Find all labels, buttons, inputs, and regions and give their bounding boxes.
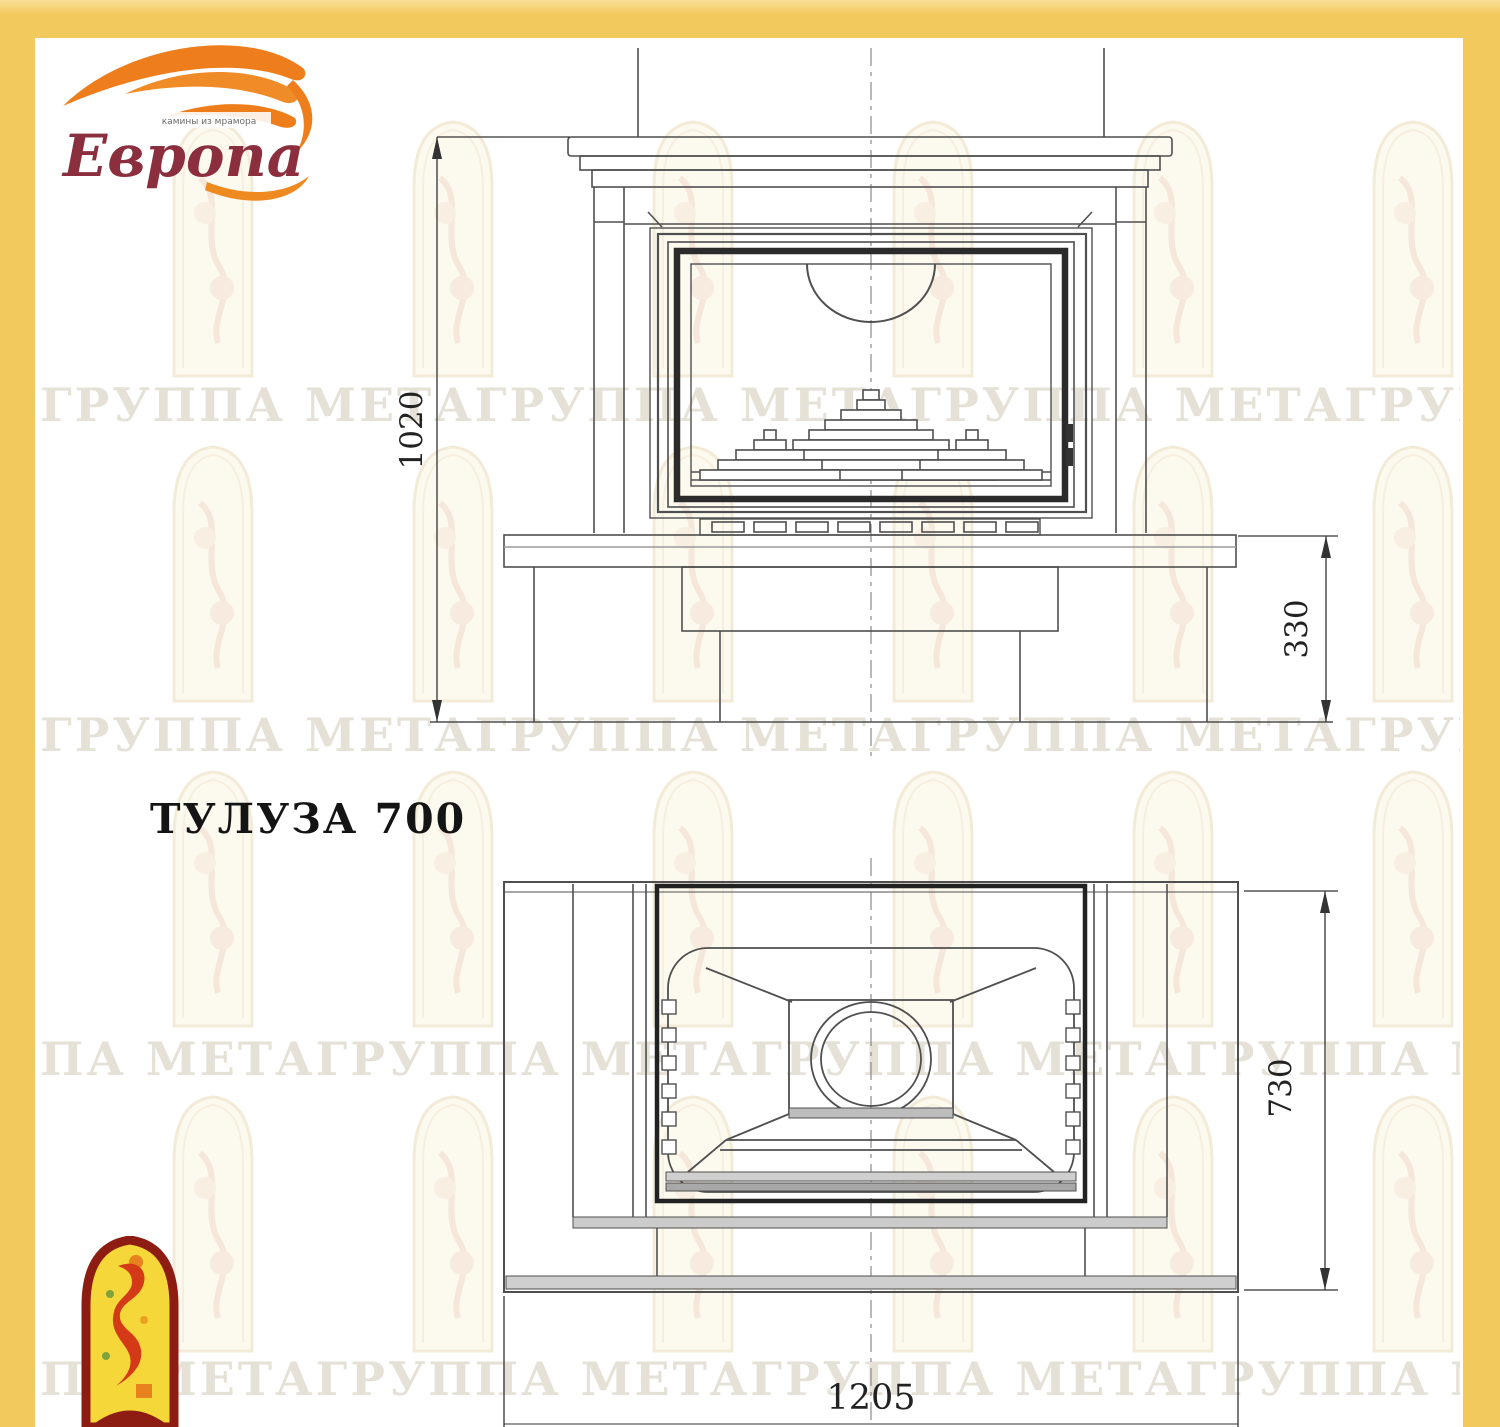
front-view [430,48,1338,760]
fireplace-technical-drawing [0,0,1500,1427]
dim-label-height: 1020 [394,391,430,470]
dim-label-depth: 730 [1263,1058,1299,1117]
europa-logo: камины из мрамора Европа [55,18,325,213]
logo-brand-text: Европа [61,122,304,190]
dim-label-plinth-height: 330 [1279,599,1315,658]
model-title: ТУЛУЗА 700 [150,795,466,843]
plan-side-walls [573,884,1167,1217]
frieze [624,212,1116,227]
plan-floor-strips [666,1172,1076,1191]
dim-1020 [432,137,570,722]
dim-label-width: 1205 [826,1378,915,1418]
base-plinth [430,567,1333,722]
screenshot-root: { "page": { "background_color": "#f2c95c… [0,0,1500,1427]
mantel-shelf [568,137,1172,187]
plan-front-bands [506,1217,1236,1289]
hearth-shelf [504,535,1236,567]
plan-view [504,858,1338,1427]
vent-grille [700,519,1040,535]
meta-group-emblem-icon [80,1236,180,1427]
